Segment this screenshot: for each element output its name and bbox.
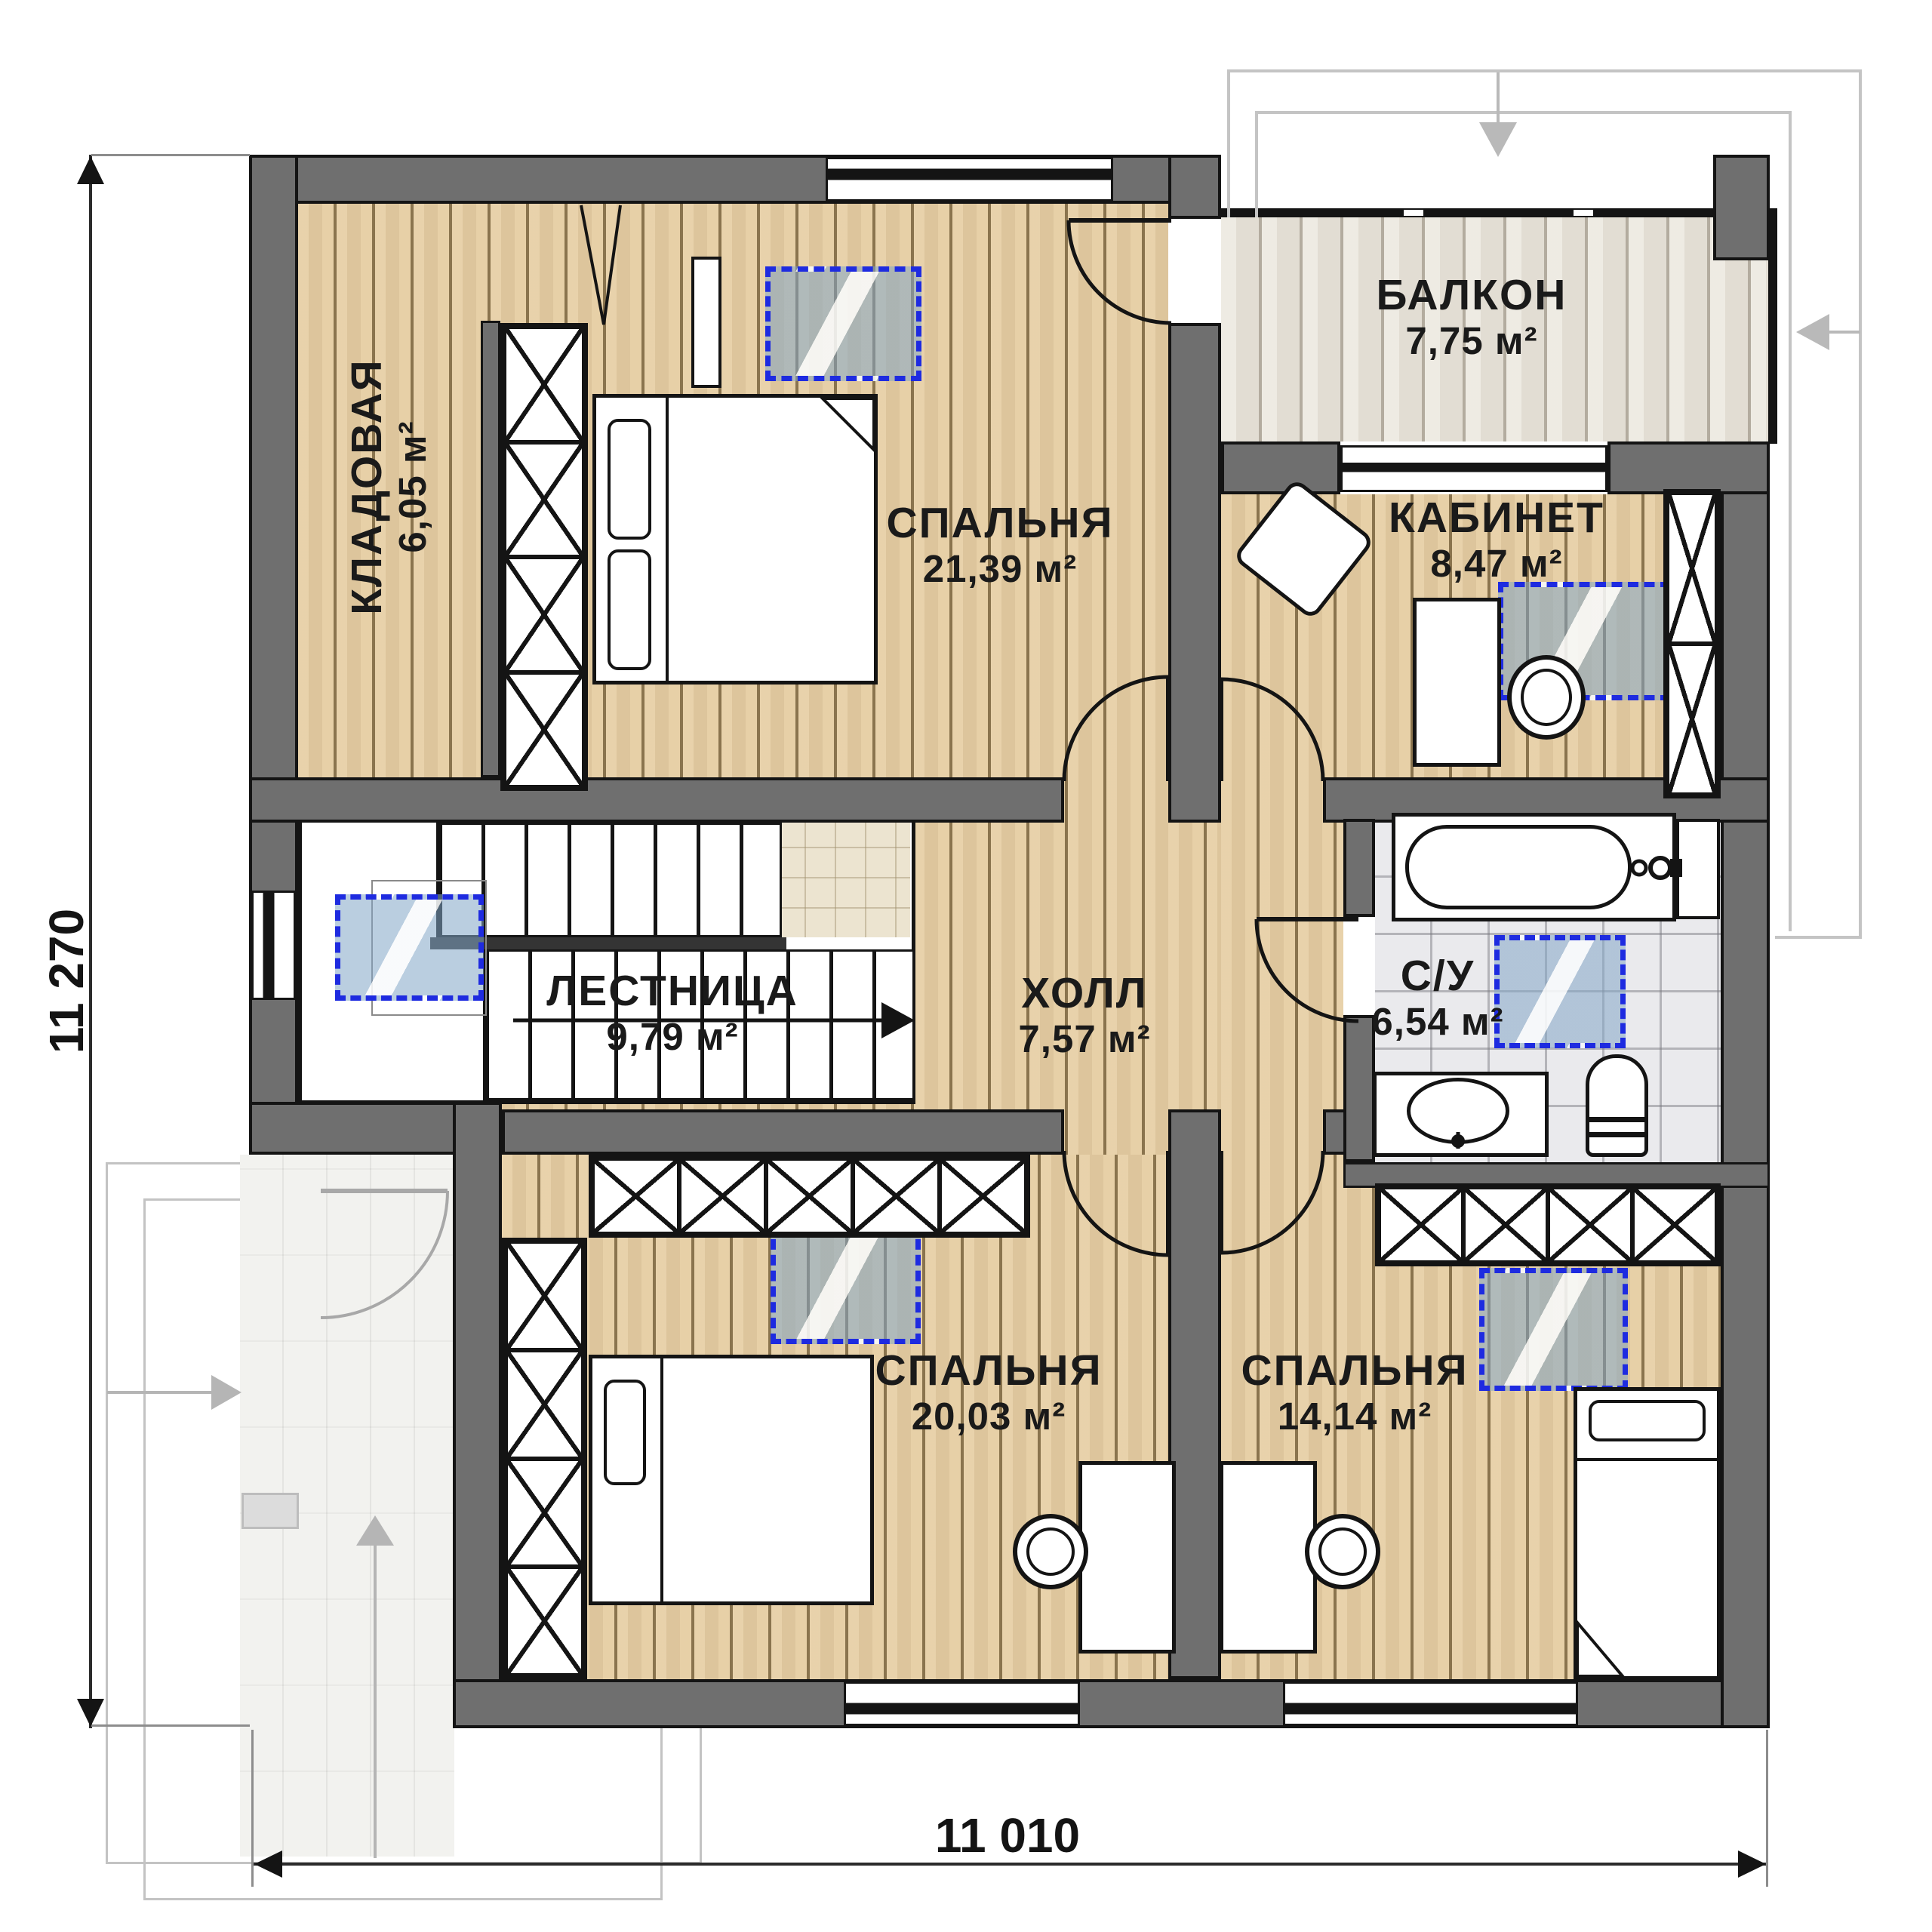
room-label-bedroom-2: СПАЛЬНЯ 20,03 м² (875, 1349, 1102, 1436)
room-label-office: КАБИНЕТ 8,47 м² (1389, 496, 1604, 583)
pillow (608, 419, 651, 540)
wardrobe-cell (1667, 644, 1717, 795)
terrace-ghost-block (241, 1493, 299, 1529)
office-chair (1013, 1514, 1088, 1589)
wardrobe-cell (1632, 1187, 1717, 1263)
sink-bowl (1407, 1078, 1509, 1144)
toilet-tank-line (1587, 1117, 1647, 1122)
wall-hall-south-a (502, 1109, 1064, 1155)
room-label-bathroom: С/У 6,54 м² (1371, 954, 1503, 1041)
room-name: КЛАДОВАЯ (345, 358, 389, 614)
wardrobe-cell (504, 557, 584, 672)
extension-line (91, 1724, 250, 1727)
room-area: 7,75 м² (1377, 321, 1567, 361)
skylight-stairs (335, 894, 484, 1001)
skylight-bedroom-3 (1479, 1268, 1628, 1391)
room-name: СПАЛЬНЯ (875, 1349, 1102, 1393)
desk-office (1413, 598, 1501, 767)
wardrobe-bedroom2-left (502, 1238, 587, 1679)
room-name: БАЛКОН (1377, 273, 1567, 318)
wall-bedroom-balcony-a (1168, 155, 1221, 219)
blanket-line (666, 398, 669, 681)
room-name: ЛЕСТНИЦА (546, 969, 798, 1014)
blanket-line (660, 1358, 663, 1601)
wall-pier-topright (1713, 155, 1770, 260)
desk-bedroom3 (1220, 1461, 1317, 1654)
wardrobe-cell (506, 1567, 583, 1675)
room-label-hall: ХОЛЛ 7,57 м² (1018, 971, 1150, 1059)
wall-office-north-a (1221, 441, 1340, 494)
wardrobe-cell (766, 1158, 853, 1234)
skylight-bedroom-2 (771, 1223, 921, 1344)
balcony-railing-gap (1574, 210, 1593, 216)
room-area: 21,39 м² (886, 549, 1113, 589)
wall-bedroom2-west (453, 1102, 502, 1728)
wardrobe-cell (1379, 1187, 1463, 1263)
window-left-stairs (251, 891, 296, 1000)
room-label-bedroom-master: СПАЛЬНЯ 21,39 м² (886, 501, 1113, 589)
extension-line (1766, 1730, 1768, 1887)
blanket-line (1577, 1458, 1718, 1461)
wall-bathroom-west-b (1343, 1015, 1375, 1162)
wardrobe-cell (1463, 1187, 1548, 1263)
chair-seat (1026, 1527, 1075, 1576)
room-label-bedroom-3: СПАЛЬНЯ 14,14 м² (1241, 1349, 1468, 1436)
stairs-upper-flight (436, 823, 782, 937)
room-area: 8,47 м² (1389, 543, 1604, 583)
wall-left (249, 155, 298, 1155)
chair-seat (1318, 1527, 1367, 1576)
room-area: 14,14 м² (1241, 1396, 1468, 1436)
office-chair (1305, 1514, 1380, 1589)
wardrobe-cell (506, 1241, 583, 1350)
wardrobe-cell (1667, 493, 1717, 644)
wardrobe-cell (853, 1158, 940, 1234)
wardrobe-cell (940, 1158, 1026, 1234)
floor-plan-canvas: БАЛКОН 7,75 м² КЛАДОВАЯ 6,05 м² СПАЛЬНЯ … (0, 0, 1932, 1932)
bathtub-inner (1405, 825, 1632, 909)
wardrobe-office (1663, 489, 1721, 798)
window-bottom-bedroom2 (844, 1681, 1080, 1726)
room-area: 6,05 м² (392, 358, 432, 614)
chair-seat (1521, 669, 1572, 726)
wall-storage-partition (481, 321, 500, 777)
pillow (608, 549, 651, 670)
room-name: СПАЛЬНЯ (1241, 1349, 1468, 1393)
wardrobe-cell (592, 1158, 679, 1234)
room-area: 9,79 м² (546, 1017, 798, 1057)
radiator (691, 257, 721, 388)
wall-bathroom-west-a (1343, 819, 1375, 917)
skylight-bedroom-master (765, 266, 921, 381)
wall-bedroom-balcony-b (1168, 323, 1221, 823)
window-bottom-bedroom3 (1283, 1681, 1578, 1726)
room-label-stairs: ЛЕСТНИЦА 9,79 м² (546, 969, 798, 1057)
extension-line (91, 154, 250, 156)
wardrobe-cell (504, 442, 584, 558)
wardrobe-bedroom2-top (589, 1155, 1030, 1238)
office-chair (1507, 655, 1586, 740)
wall-office-north-b (1607, 441, 1770, 494)
dimension-label-horizontal: 11 010 (935, 1807, 1080, 1863)
balcony-railing-top (1221, 208, 1777, 217)
skylight-bathroom (1494, 935, 1626, 1048)
room-label-storage: КЛАДОВАЯ 6,05 м² (345, 358, 432, 614)
wardrobe-cell (504, 672, 584, 788)
window-office-balcony (1340, 445, 1607, 492)
extension-line (251, 1730, 254, 1887)
toilet-tank-line (1587, 1132, 1647, 1137)
desk-bedroom2 (1078, 1461, 1176, 1654)
wardrobe-cell (506, 1350, 583, 1459)
wall-right (1721, 441, 1770, 1728)
pillow (1589, 1400, 1706, 1441)
wardrobe-bedroom-master (500, 323, 588, 791)
room-area: 7,57 м² (1018, 1019, 1150, 1059)
ghost-arrow-left-icon (1796, 314, 1829, 350)
balcony-railing-gap (1404, 210, 1423, 216)
room-name: СПАЛЬНЯ (886, 501, 1113, 546)
ghost-arrow-down-icon (1479, 122, 1517, 157)
room-area: 20,03 м² (875, 1396, 1102, 1436)
room-name: КАБИНЕТ (1389, 496, 1604, 540)
room-label-balcony: БАЛКОН 7,75 м² (1377, 273, 1567, 361)
wall-between-bedrooms (1168, 1109, 1221, 1679)
wardrobe-cell (504, 327, 584, 442)
room-name: С/У (1371, 954, 1503, 998)
wardrobe-cell (679, 1158, 766, 1234)
window-top (826, 157, 1113, 202)
wardrobe-bedroom3-top (1375, 1183, 1721, 1266)
wardrobe-cell (506, 1459, 583, 1567)
floor-hall-center (1168, 819, 1221, 1109)
toilet (1586, 1054, 1648, 1157)
room-area: 6,54 м² (1371, 1001, 1503, 1041)
wall-hall-north-a (249, 777, 1064, 823)
dimension-label-vertical: 11 270 (38, 909, 94, 1054)
pillow (604, 1380, 646, 1485)
room-name: ХОЛЛ (1018, 971, 1150, 1016)
bath-ledge (1676, 819, 1720, 919)
wardrobe-cell (1548, 1187, 1632, 1263)
